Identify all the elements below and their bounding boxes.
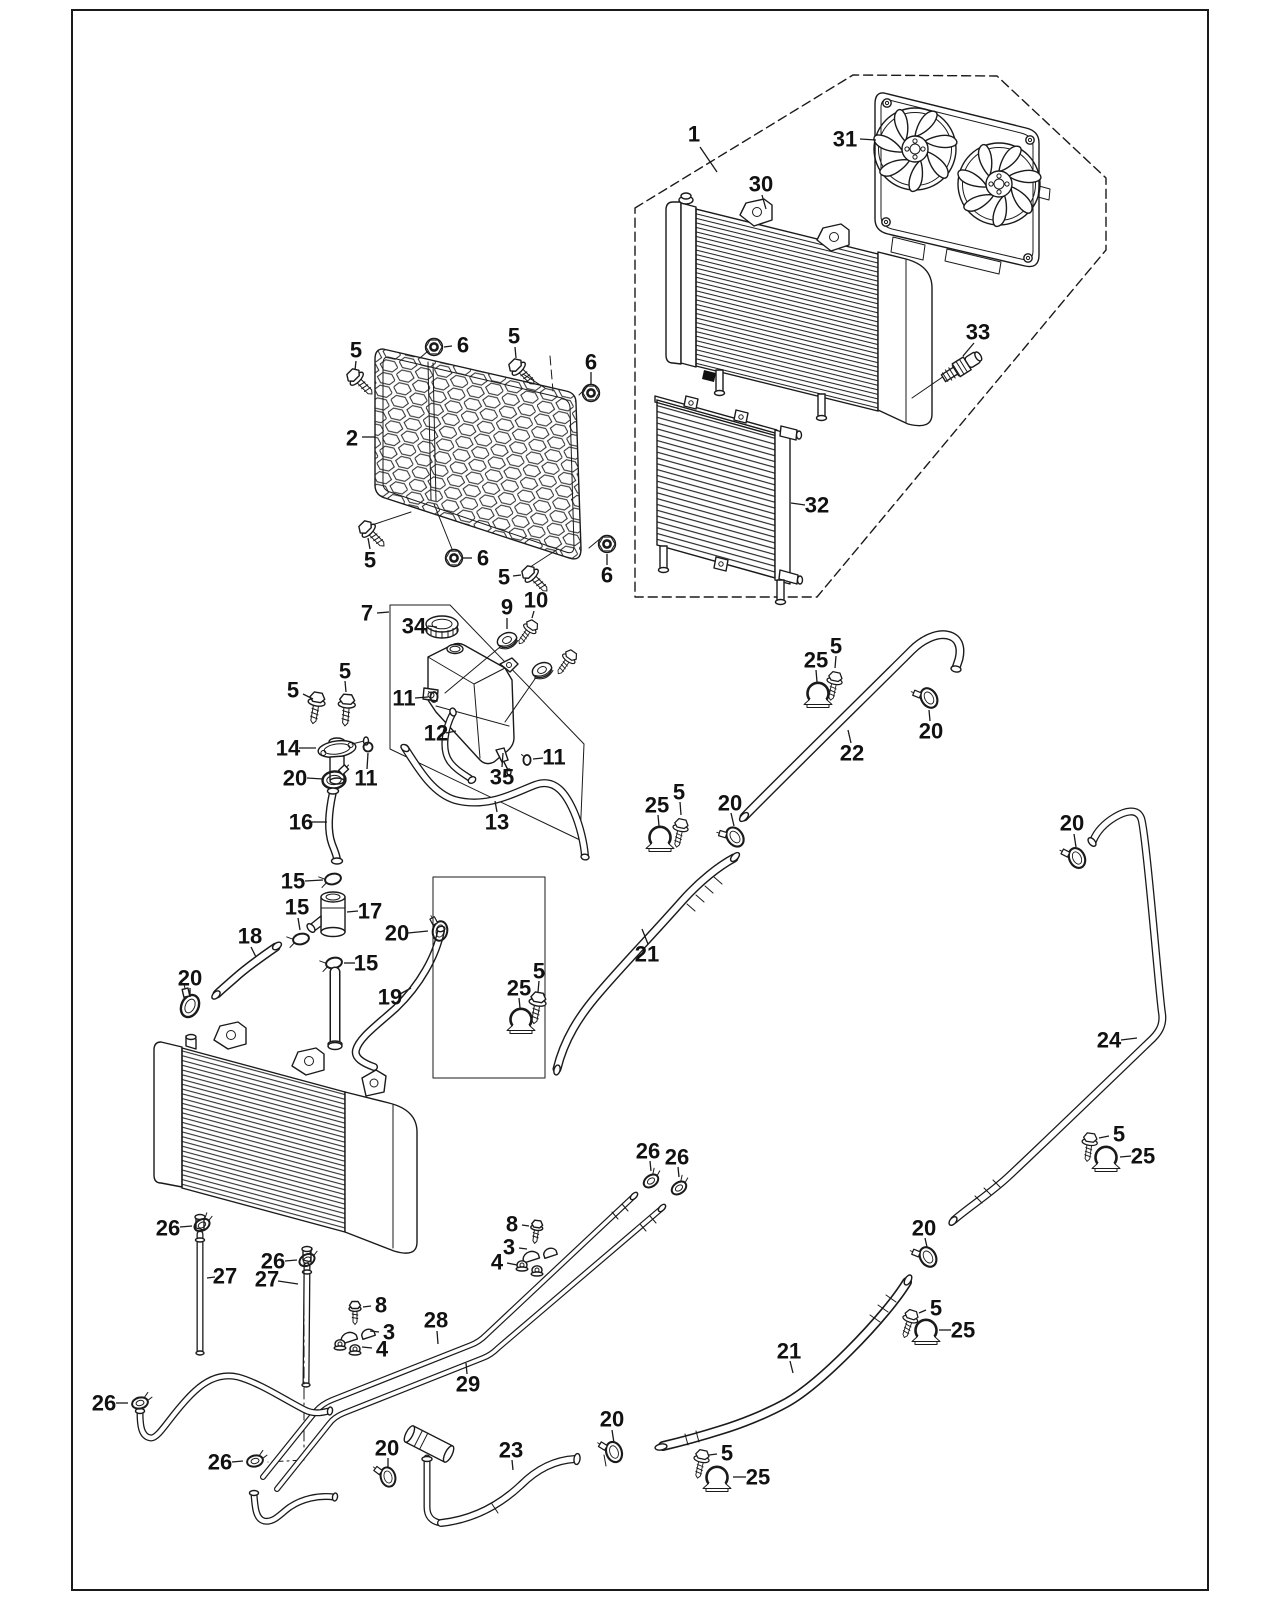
callout-24-water-pipe: 24	[1097, 1028, 1122, 1053]
callout-20-hose-clamp: 20	[718, 791, 742, 816]
parts-diagram-page: 1313033322565656567349101112351113115514…	[0, 0, 1280, 1600]
callout-26-spring-clamp: 26	[665, 1145, 689, 1170]
callout-13-overflow-hose: 13	[485, 810, 509, 835]
callout-5-flange-bolt: 5	[721, 1441, 733, 1466]
callout-27-drain-tube: 27	[213, 1264, 237, 1289]
callout-20-hose-clamp: 20	[283, 766, 307, 791]
callout-11-o-ring-clip: 11	[354, 766, 377, 791]
callout-25-pipe-mount-clamp: 25	[645, 793, 669, 818]
callout-7-reservoir-assembly: 7	[361, 601, 373, 626]
callout-34-reservoir-cap: 34	[402, 614, 427, 639]
callout-29-metal-pipe: 29	[456, 1372, 480, 1397]
callout-15-spring-clamp: 15	[281, 869, 305, 894]
callout-6-flange-nut: 6	[477, 546, 489, 571]
callout-25-pipe-mount-clamp: 25	[951, 1318, 975, 1343]
callout-25-pipe-mount-clamp: 25	[507, 976, 531, 1001]
callout-9-grommet: 9	[501, 595, 513, 620]
cooling-system-exploded-diagram: 1313033322565656567349101112351113115514…	[0, 0, 1280, 1600]
callout-22-water-pipe: 22	[840, 741, 864, 766]
callout-25-pipe-mount-clamp: 25	[746, 1465, 770, 1490]
callout-15-spring-clamp: 15	[285, 895, 309, 920]
callout-5-flange-bolt: 5	[350, 338, 362, 363]
callout-21-water-pipe: 21	[777, 1339, 801, 1364]
callout-20-hose-clamp: 20	[1060, 811, 1084, 836]
callout-6-flange-nut: 6	[601, 563, 613, 588]
callout-16-filler-hose: 16	[289, 810, 313, 835]
callout-15-spring-clamp: 15	[354, 951, 378, 976]
callout-20-hose-clamp: 20	[178, 966, 202, 991]
callout-5-flange-bolt: 5	[930, 1296, 942, 1321]
callout-32-oil-cooler: 32	[805, 493, 829, 518]
callout-18-upper-radiator-hose: 18	[238, 924, 262, 949]
callout-8-screw: 8	[506, 1212, 518, 1237]
callout-5-flange-bolt: 5	[498, 565, 510, 590]
callout-23-bypass-hose: 23	[499, 1438, 523, 1463]
callout-17-thermostat-tee: 17	[358, 899, 382, 924]
callout-5-flange-bolt: 5	[830, 634, 842, 659]
callout-3-pipe-bracket: 3	[503, 1235, 515, 1260]
callout-26-spring-clamp: 26	[92, 1391, 116, 1416]
callout-26-spring-clamp: 26	[156, 1216, 180, 1241]
callout-6-flange-nut: 6	[457, 333, 469, 358]
callout-2-radiator-mesh-guard: 2	[346, 426, 358, 451]
callout-8-screw: 8	[375, 1293, 387, 1318]
callout-20-hose-clamp: 20	[385, 921, 409, 946]
callout-20-hose-clamp: 20	[912, 1216, 936, 1241]
callout-26-spring-clamp: 26	[636, 1139, 660, 1164]
callout-5-flange-bolt: 5	[533, 959, 545, 984]
callout-26-spring-clamp: 26	[208, 1450, 232, 1475]
callout-31-fan-shroud: 31	[833, 127, 857, 152]
callout-4-flange-nut: 4	[376, 1337, 389, 1362]
callout-33-coolant-temp-sensor: 33	[966, 320, 990, 345]
callout-19-inlet-hose: 19	[378, 985, 402, 1010]
callout-35-reservoir-tank: 35	[490, 765, 514, 790]
callout-5-flange-bolt: 5	[508, 324, 520, 349]
callout-5-flange-bolt: 5	[339, 659, 351, 684]
callout-25-pipe-mount-clamp: 25	[1131, 1144, 1155, 1169]
callout-30-radiator: 30	[749, 172, 773, 197]
callout-5-flange-bolt: 5	[364, 548, 376, 573]
callout-27-drain-tube: 27	[255, 1267, 279, 1292]
callout-11-clip: 11	[542, 745, 565, 770]
callout-20-hose-clamp: 20	[919, 719, 943, 744]
page-background	[0, 0, 1280, 1600]
callout-5-flange-bolt: 5	[673, 780, 685, 805]
callout-28-metal-pipe: 28	[424, 1308, 448, 1333]
callout-14-filler-neck: 14	[276, 736, 301, 761]
reservoir-cap	[426, 616, 458, 638]
callout-12-breather-hose: 12	[424, 721, 448, 746]
callout-20-hose-clamp: 20	[375, 1436, 399, 1461]
callout-25-pipe-mount-clamp: 25	[804, 648, 828, 673]
callout-1-fan-radiator-assembly: 1	[688, 122, 700, 147]
callout-10-grommet-bolt: 10	[524, 588, 548, 613]
callout-20-hose-clamp: 20	[600, 1407, 624, 1432]
callout-5-flange-bolt: 5	[287, 678, 299, 703]
callout-21-water-pipe: 21	[635, 942, 659, 967]
callout-5-flange-bolt: 5	[1113, 1122, 1125, 1147]
callout-4-flange-nut: 4	[491, 1250, 504, 1275]
callout-11-clip: 11	[392, 686, 415, 711]
callout-6-flange-nut: 6	[585, 350, 597, 375]
